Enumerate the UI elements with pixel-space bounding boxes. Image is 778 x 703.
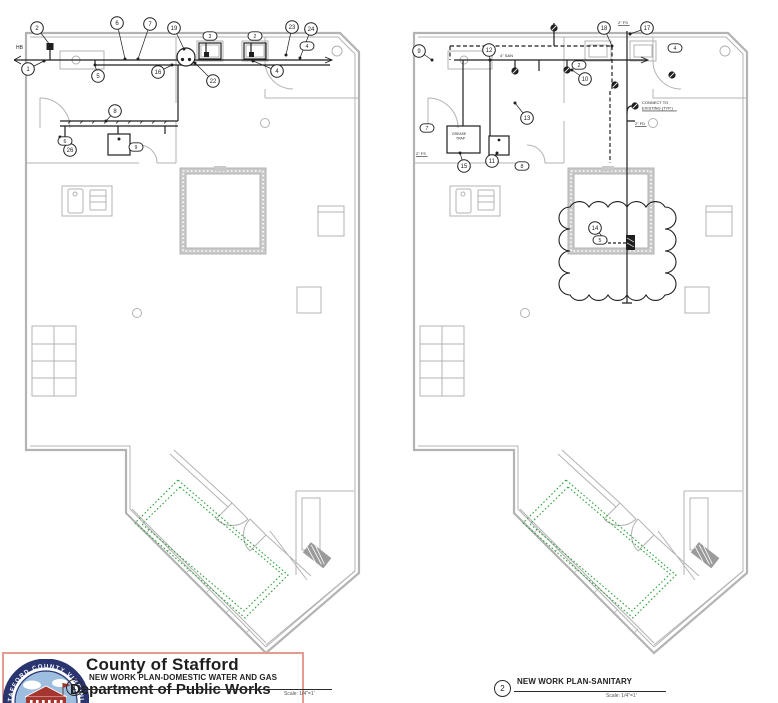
pipe-label: TRAP (456, 137, 466, 141)
equipment-tag-number: 6 (64, 139, 67, 145)
keynote-number: 22 (210, 79, 217, 85)
leader-dot (49, 44, 52, 47)
drawing-sheet: 267191516224232482632469HB (0, 0, 778, 703)
annotation-layer: 267191516224232482632469HB (16, 17, 317, 157)
pipe-label: CONNECT TO (642, 100, 668, 105)
annotation-layer: 91210181713111514247584" SAN2" FS2" FSCO… (413, 20, 682, 244)
leader-dot (611, 45, 614, 48)
equipment-tag-number: 4 (674, 46, 677, 52)
pipe-label: 2" FD (635, 121, 645, 126)
keynote-number: 11 (489, 159, 496, 165)
equipment-tag-number: 7 (426, 126, 429, 132)
leader-dot (252, 60, 255, 63)
leader-dot (459, 152, 462, 155)
floor-drain-symbol (626, 235, 635, 250)
detail-number: 1 (72, 683, 76, 692)
equipment-tag-number: 3 (209, 34, 212, 40)
scale-text: Scale: 1/4"=1' (606, 693, 637, 699)
title-underline (514, 691, 666, 692)
equipment-tag-number: 2 (578, 63, 581, 69)
leader-dot (194, 62, 197, 65)
water-heater-symbol (177, 48, 195, 66)
sink-connection (108, 134, 130, 155)
plan-domestic-water-gas: 267191516224232482632469HB (14, 3, 384, 659)
keynote-number: 17 (644, 26, 651, 32)
keynote-number: 24 (308, 27, 315, 33)
leader-dot (285, 54, 288, 57)
leader-dot (183, 48, 186, 51)
leader-dot (514, 102, 517, 105)
equipment-tag-number: 9 (135, 145, 138, 151)
leader-dot (496, 152, 499, 155)
keynote-number: 13 (524, 116, 531, 122)
leader-dot (299, 57, 302, 60)
detail-number-bubble: 2 (494, 680, 511, 697)
leader-dot (94, 64, 97, 67)
equipment-tag-number: 4 (306, 44, 309, 50)
leader-dot (571, 69, 574, 72)
leader-dot (171, 64, 174, 67)
plan-sanitary: 91210181713111514247584" SAN2" FS2" FSCO… (402, 3, 772, 659)
scale-text: Scale: 1/4"=1' (284, 691, 315, 697)
keynote-number: 19 (171, 26, 178, 32)
pipe-label: HB (16, 45, 24, 51)
leader-dot (105, 120, 108, 123)
leader-dot (124, 58, 127, 61)
sheet-title-text: NEW WORK PLAN-DOMESTIC WATER AND GAS (89, 673, 277, 682)
pipe-label: 2" FS (416, 151, 426, 156)
equipment-tag-number: 5 (599, 238, 602, 244)
detail-number: 2 (500, 684, 504, 693)
leader-dot (137, 58, 140, 61)
pipe-label: EXISTING (TYP.) (642, 106, 673, 111)
keynote-number: 16 (155, 70, 162, 76)
keynote-number: 23 (289, 25, 296, 31)
keynote-number: 18 (601, 26, 608, 32)
pipe-label: 4" SAN (500, 53, 513, 58)
leader-dot (489, 59, 492, 62)
keynote-number: 12 (486, 48, 493, 54)
keynote-number: 14 (592, 226, 599, 232)
leader-dot (431, 59, 434, 62)
leader-dot (43, 60, 46, 63)
equipment-tag-number: 2 (254, 34, 257, 40)
pipe-label: 2" FS (618, 20, 628, 25)
keynote-number: 10 (582, 77, 589, 83)
keynote-number: 26 (67, 148, 74, 154)
pipe-label: GREASE (452, 132, 467, 136)
sheet-title-text: NEW WORK PLAN-SANITARY (517, 677, 632, 686)
detail-number-bubble: 1 (66, 679, 83, 696)
county-name: County of Stafford (86, 655, 239, 675)
leader-dot (629, 33, 632, 36)
equipment-tag-number: 8 (521, 164, 524, 170)
title-underline (86, 689, 332, 690)
keynote-number: 15 (461, 164, 468, 170)
